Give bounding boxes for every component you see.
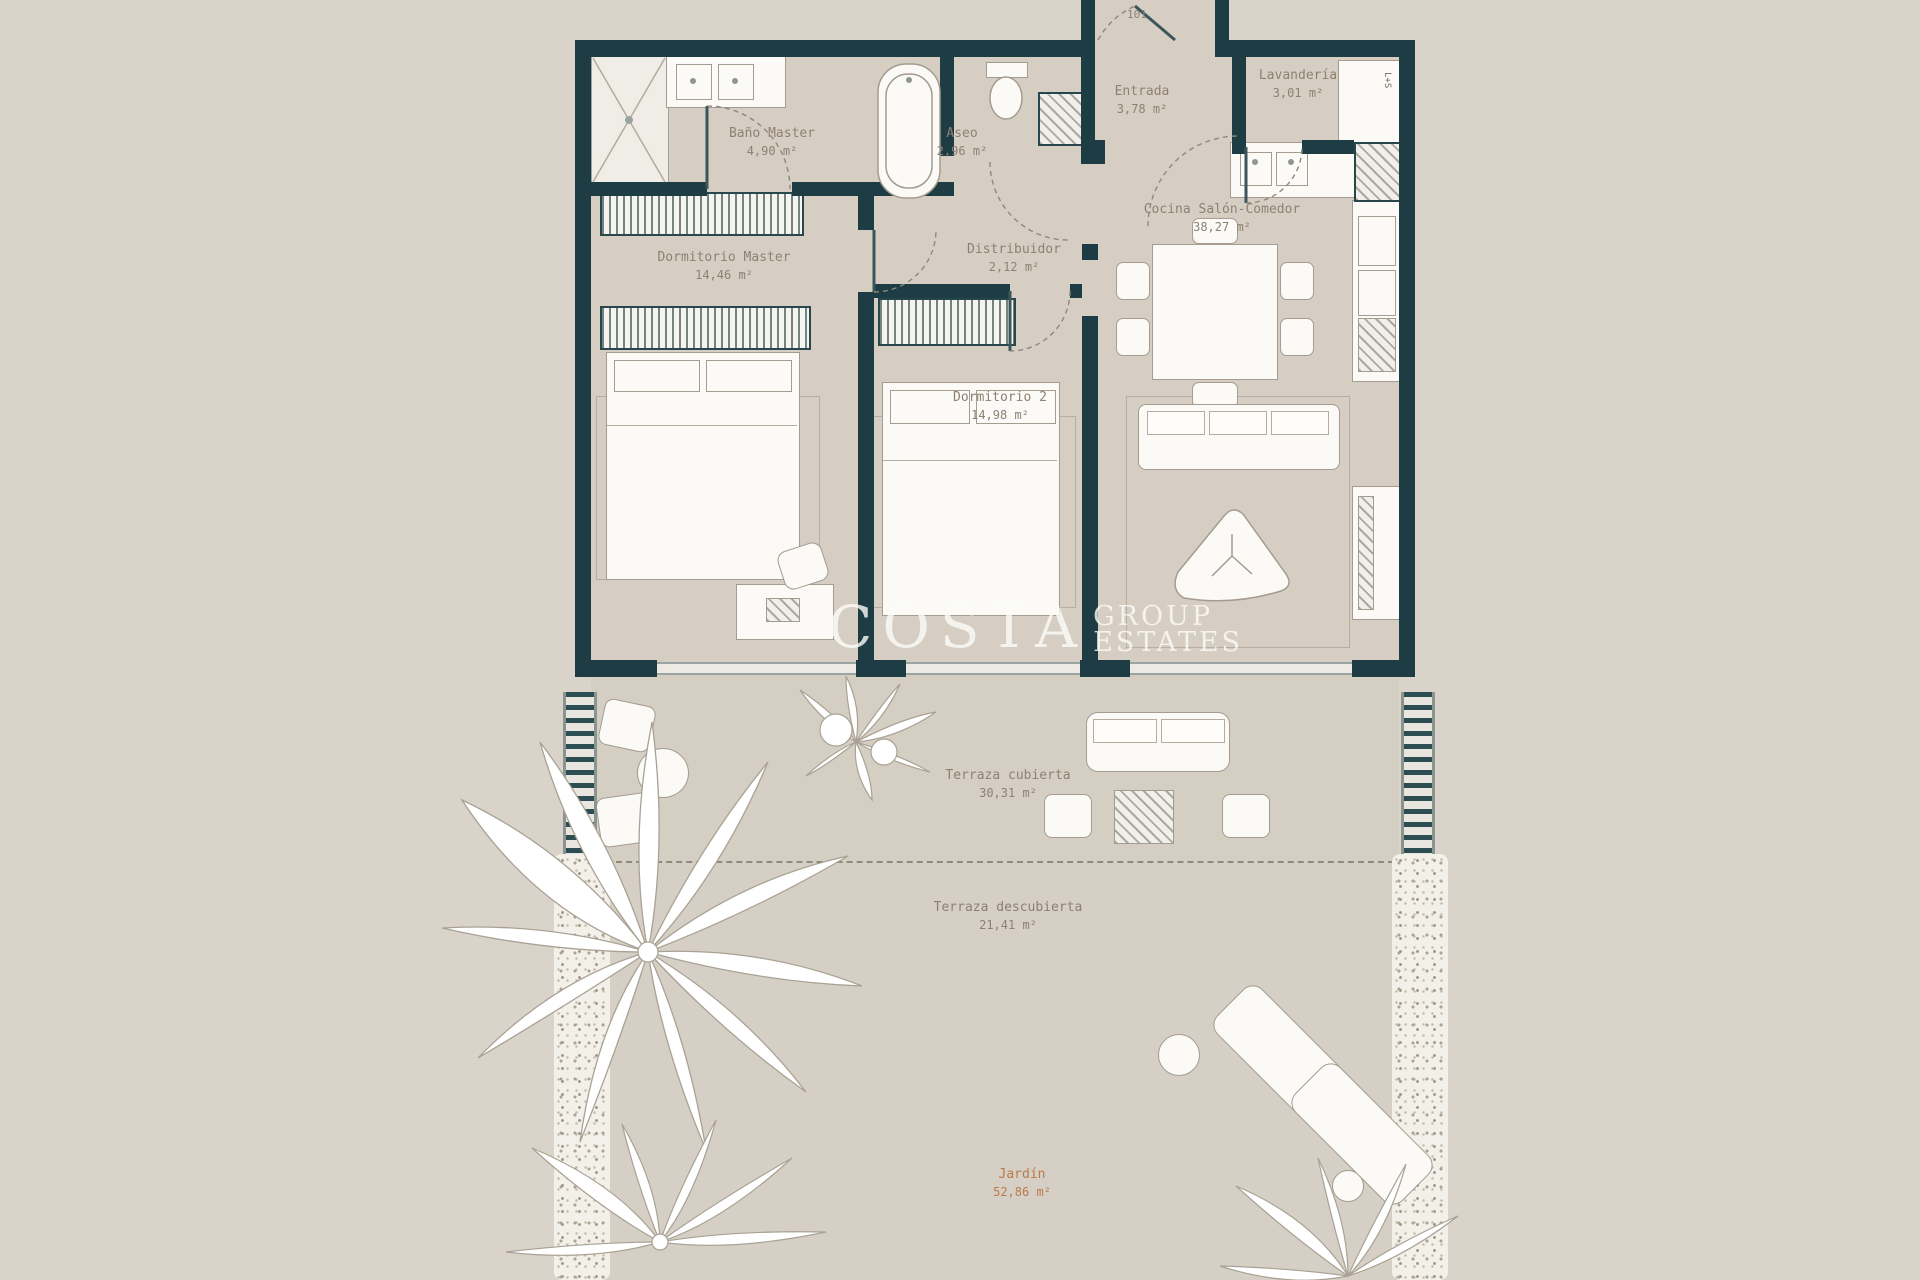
oven xyxy=(1358,216,1396,266)
dining-chair-1 xyxy=(1116,262,1150,300)
dining-chair-2 xyxy=(1116,318,1150,356)
wall-laundry-west xyxy=(1232,56,1246,154)
dining-table xyxy=(1152,244,1278,380)
kitchen-sink-2 xyxy=(1276,152,1308,186)
label-dormitorio-master: Dormitorio Master 14,46 m² xyxy=(657,249,790,283)
label-distribuidor: Distribuidor 2,12 m² xyxy=(967,241,1061,275)
label-bano-master: Baño Master 4,90 m² xyxy=(729,125,815,159)
label-dormitorio-2: Dormitorio 2 14,98 m² xyxy=(953,389,1047,423)
wall-entry-stub-left xyxy=(1081,0,1095,40)
terrace-round-table xyxy=(637,748,689,798)
pillow-master-1 xyxy=(614,360,700,392)
floorplan-canvas: L+S xyxy=(0,0,1920,1280)
outdoor-chair-2 xyxy=(1222,794,1270,838)
sofa-cushion-3 xyxy=(1271,411,1329,435)
wall-bottom-pier-3 xyxy=(1080,660,1130,677)
wall-bottom-pier-2 xyxy=(856,660,906,677)
sofa-cushion-1 xyxy=(1147,411,1205,435)
washer-dryer xyxy=(1338,60,1402,146)
wall-top-left xyxy=(575,40,1095,57)
wall-master-divider-top xyxy=(858,196,874,230)
wall-dorm2-north-right xyxy=(1070,284,1082,298)
laptop-desk xyxy=(766,598,800,622)
apartment-door-number: 101 xyxy=(1127,8,1147,21)
wall-dorm2-living-stub xyxy=(1082,244,1098,260)
sink-left xyxy=(676,64,712,100)
dining-chair-3 xyxy=(1280,262,1314,300)
label-terraza-descubierta: Terraza descubierta 21,41 m² xyxy=(934,899,1083,933)
bed-dorm2-foldline xyxy=(883,460,1057,461)
kitchen-sink-1 xyxy=(1240,152,1272,186)
label-entrada: Entrada 3,78 m² xyxy=(1115,83,1170,117)
lounger-side-table xyxy=(1158,1034,1200,1076)
fridge xyxy=(1358,318,1396,372)
sofa xyxy=(1138,404,1340,470)
washer-dryer-label: L+S xyxy=(1382,72,1392,88)
wall-bath-south-right xyxy=(792,182,954,196)
hedge-right xyxy=(1392,854,1448,1280)
label-aseo: Aseo 2,96 m² xyxy=(937,125,988,159)
wall-bath-south-left xyxy=(575,182,707,196)
wall-bottom-pier-4 xyxy=(1352,660,1415,677)
wardrobe-master-1 xyxy=(600,192,804,236)
window-slider-3 xyxy=(1130,662,1352,675)
window-slider-2 xyxy=(906,662,1080,675)
tv-screen xyxy=(1358,496,1374,610)
bed-master-foldline xyxy=(607,425,797,426)
label-lavanderia: Lavandería 3,01 m² xyxy=(1259,67,1337,101)
entry-niche-floor xyxy=(1095,0,1215,40)
outdoor-sofa xyxy=(1086,712,1230,772)
wall-right xyxy=(1399,57,1415,677)
wall-left xyxy=(575,57,591,677)
outdoor-sofa-cushion-1 xyxy=(1093,719,1157,743)
sofa-cushion-2 xyxy=(1209,411,1267,435)
terrace-chair-2 xyxy=(595,791,655,848)
railing-right xyxy=(1401,692,1435,860)
shower-tray xyxy=(591,56,669,186)
label-terraza-cubierta: Terraza cubierta 30,31 m² xyxy=(945,767,1070,801)
outdoor-sofa-cushion-2 xyxy=(1161,719,1225,743)
wall-entry-stub-right xyxy=(1215,0,1229,40)
wall-laundry-south xyxy=(1302,140,1354,154)
label-jardin: Jardín 52,86 m² xyxy=(993,1166,1051,1200)
pillow-master-2 xyxy=(706,360,792,392)
label-cocina-salon: Cocina Salón-Comedor 38,27 m² xyxy=(1144,201,1301,235)
dining-chair-4 xyxy=(1280,318,1314,356)
toilet-tank xyxy=(986,62,1028,78)
wall-top-right xyxy=(1215,40,1415,57)
wardrobe-dorm2 xyxy=(878,298,1016,346)
outdoor-coffee-table xyxy=(1114,790,1174,844)
dishwasher xyxy=(1358,270,1396,316)
wall-dorm2-living xyxy=(1082,316,1098,660)
hedge-left xyxy=(554,854,610,1280)
wall-bottom-pier-1 xyxy=(575,660,657,677)
terrace-garden-boundary xyxy=(606,861,1394,863)
wall-dorm2-north-left xyxy=(874,284,1010,298)
sink-right xyxy=(718,64,754,100)
railing-left xyxy=(563,692,597,860)
window-slider-1 xyxy=(657,662,856,675)
pillar-hall xyxy=(1081,140,1105,164)
wall-master-divider xyxy=(858,292,874,660)
wardrobe-master-2 xyxy=(600,306,811,350)
